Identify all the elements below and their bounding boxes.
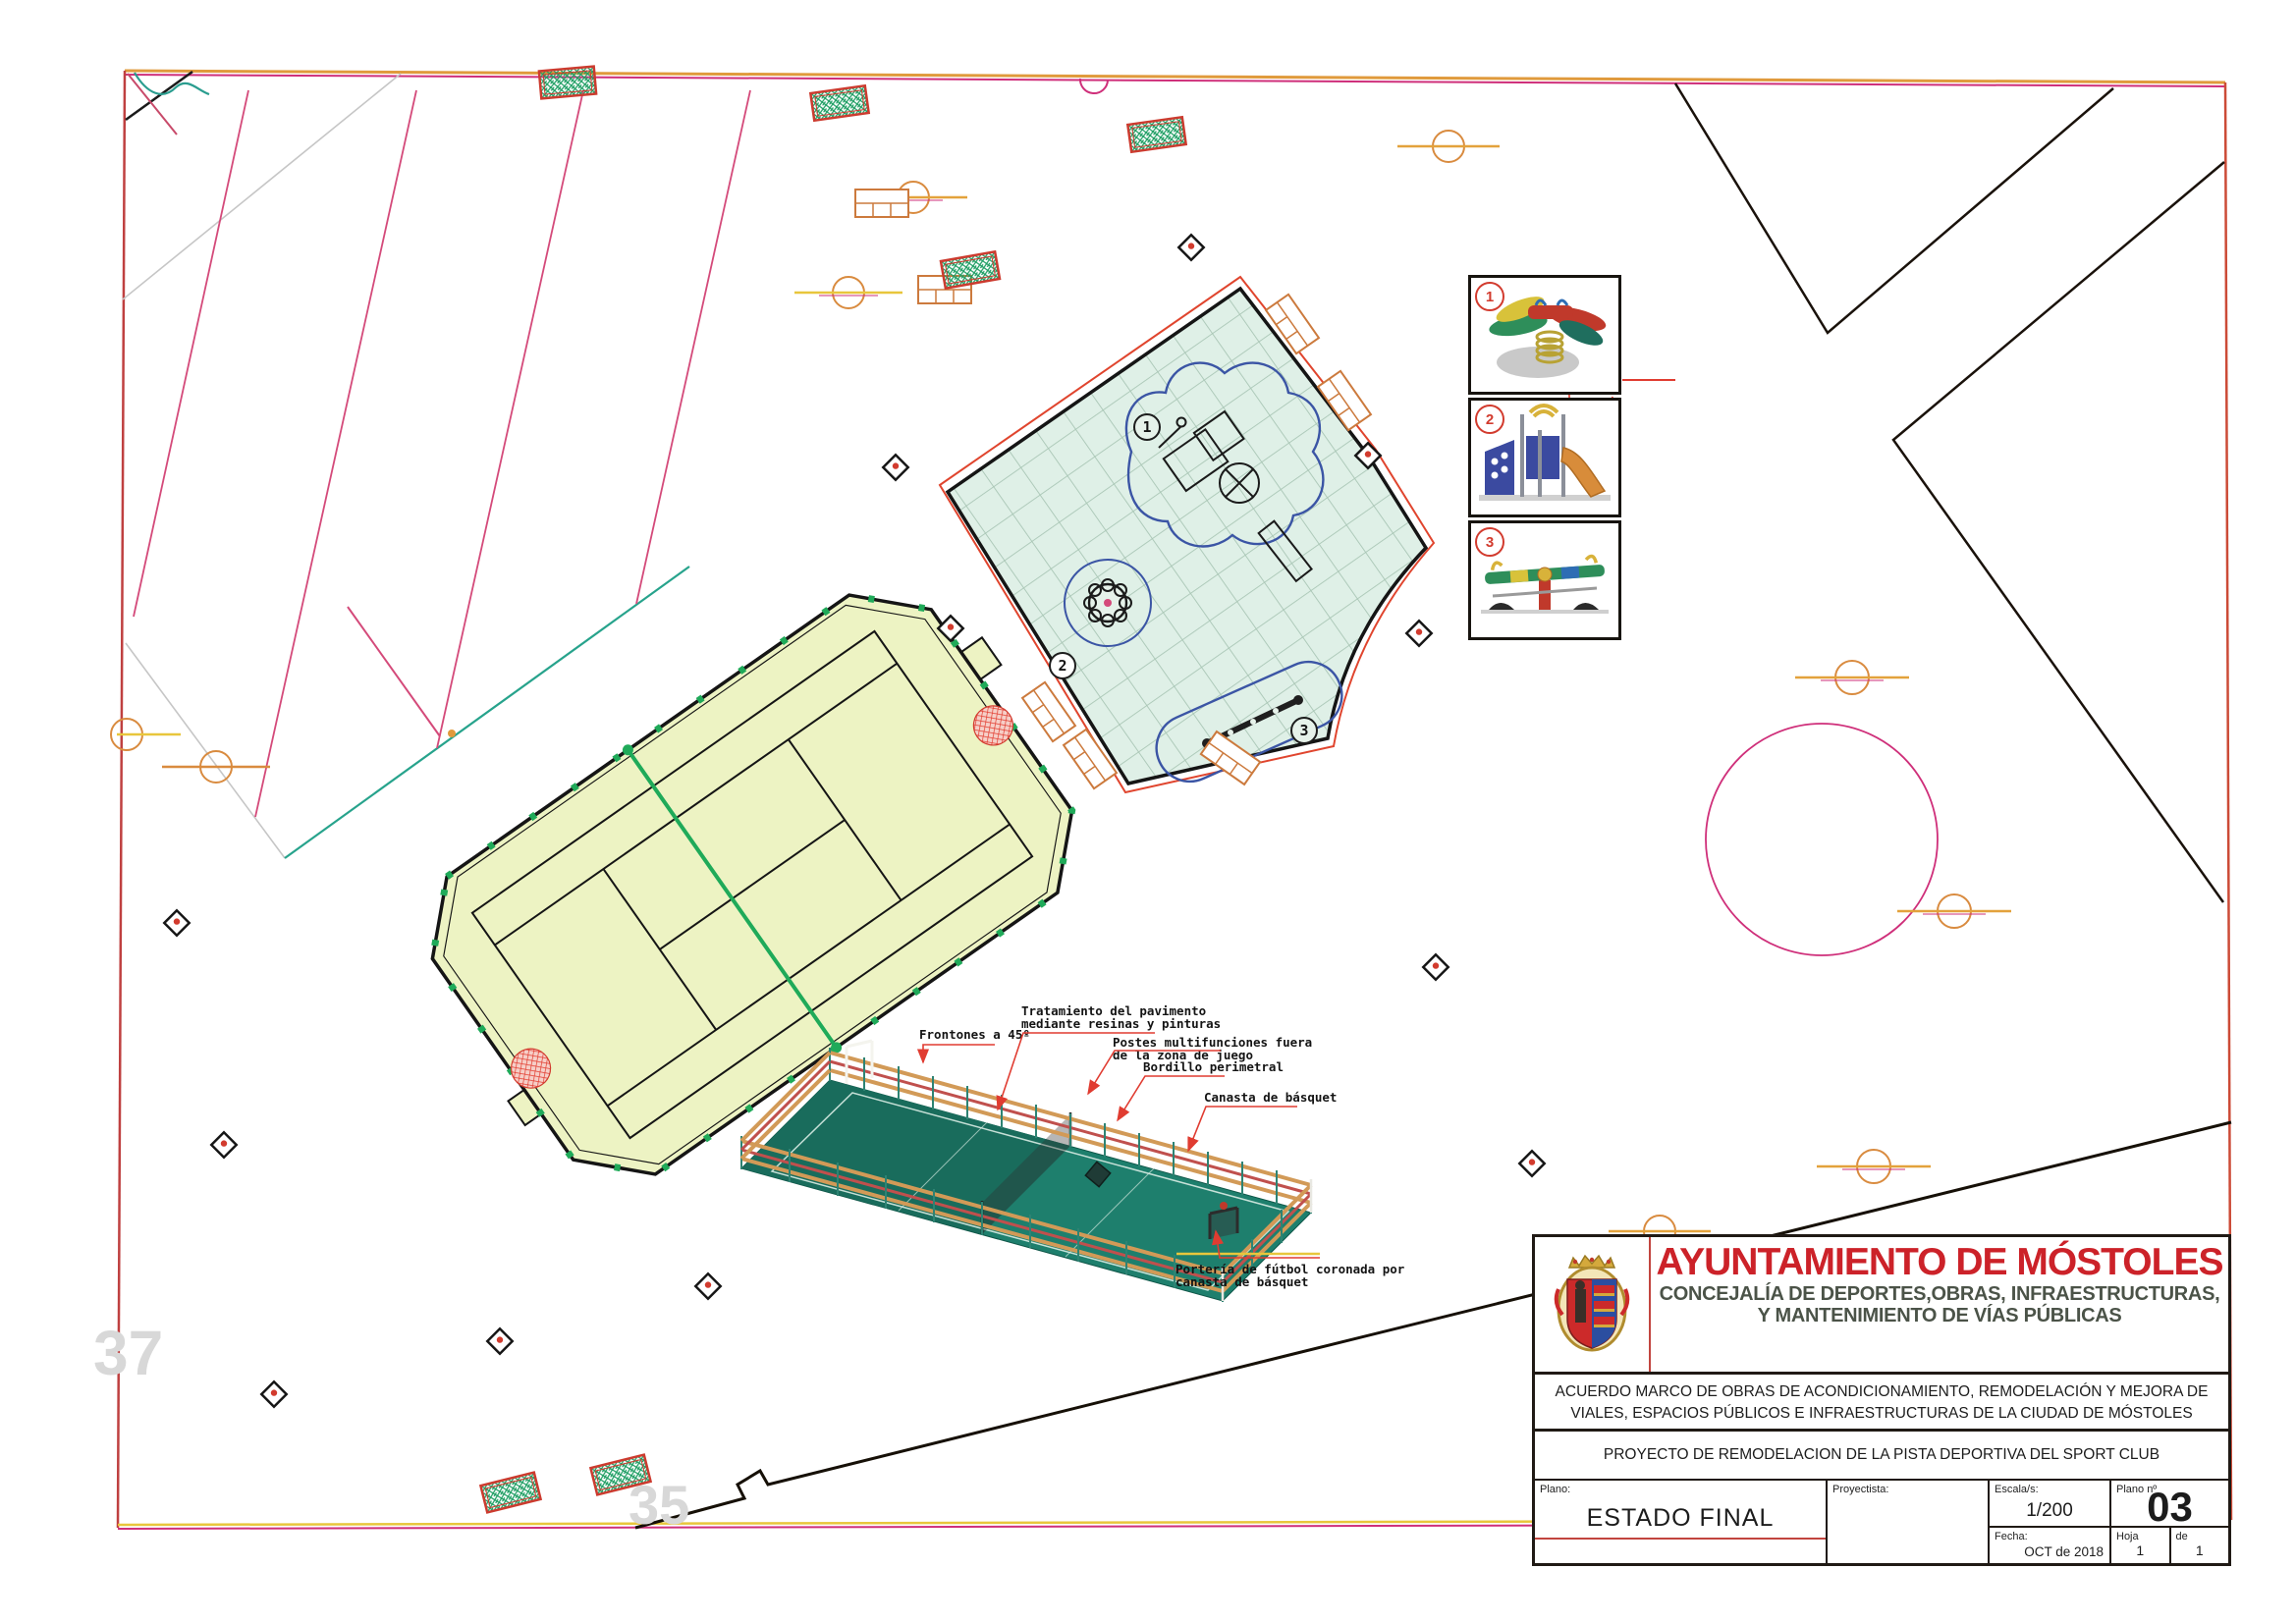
svg-text:1: 1 [1142, 418, 1151, 436]
proyectista-cell: Proyectista: [1828, 1481, 1990, 1563]
svg-text:canasta de básquet: canasta de básquet [1175, 1274, 1308, 1289]
hoja-value: 1 [2136, 1542, 2144, 1558]
equipment-marker-2: 2 [1050, 653, 1075, 678]
equipment-photo-1: 1 [1468, 275, 1621, 395]
circle-feature [1706, 724, 1938, 955]
photo-number-badge: 1 [1475, 282, 1504, 311]
plano-label: Plano: [1540, 1484, 1570, 1495]
mostoles-crest-icon [1552, 1250, 1632, 1360]
equipment-photo-2: 2 [1468, 398, 1621, 517]
fecha-value: OCT de 2018 [2024, 1544, 2104, 1559]
svg-text:2: 2 [1058, 657, 1066, 675]
de-subcell: de 1 [2171, 1528, 2229, 1563]
escala-cell: Escala/s: 1/200 [1990, 1481, 2109, 1528]
coat-of-arms [1535, 1237, 1651, 1372]
callout-canasta: Canasta de básquet [1188, 1090, 1337, 1151]
de-label: de [2176, 1531, 2188, 1542]
de-value: 1 [2196, 1542, 2204, 1558]
planonum-hoja-cell: Plano nº 03 Hoja 1 de 1 [2111, 1481, 2228, 1563]
title-block-fields: Plano: ESTADO FINAL Proyectista: Escala/… [1535, 1481, 2228, 1563]
organization-title: AYUNTAMIENTO DE MÓSTOLES [1651, 1243, 2228, 1283]
tree-icons [111, 131, 2011, 1247]
department-line2: Y MANTENIMIENTO DE VÍAS PÚBLICAS [1651, 1305, 2228, 1326]
plano-cell: Plano: ESTADO FINAL [1535, 1481, 1828, 1563]
petanque-stripes [134, 90, 750, 817]
photo-number-badge: 2 [1475, 405, 1504, 434]
proyectista-label: Proyectista: [1832, 1484, 1888, 1495]
plano-empty-strip [1535, 1538, 1826, 1563]
department-line1: CONCEJALÍA DE DEPORTES,OBRAS, INFRAESTRU… [1651, 1283, 2228, 1305]
title-block: AYUNTAMIENTO DE MÓSTOLES CONCEJALÍA DE D… [1532, 1234, 2231, 1566]
agreement-line1: ACUERDO MARCO DE OBRAS DE ACONDICIONAMIE… [1535, 1381, 2228, 1403]
boundary-wedge-2 [1893, 162, 2224, 902]
plano-num-label: Plano nº [2116, 1484, 2157, 1495]
callout-frontones: Frontones a 45º [919, 1027, 1030, 1062]
svg-text:Canasta de básquet: Canasta de básquet [1204, 1090, 1337, 1105]
hoja-cell: Hoja 1 de 1 [2111, 1528, 2228, 1563]
svg-text:mediante resinas y pinturas: mediante resinas y pinturas [1021, 1016, 1221, 1031]
svg-text:Bordillo perimetral: Bordillo perimetral [1143, 1059, 1284, 1074]
playground-area: 1 2 3 [940, 277, 1434, 792]
svg-text:Frontones a 45º: Frontones a 45º [919, 1027, 1030, 1042]
agreement-line2: VIALES, ESPACIOS PÚBLICOS E INFRAESTRUCT… [1535, 1403, 2228, 1425]
plano-num-cell: Plano nº 03 [2111, 1481, 2228, 1528]
fecha-cell: Fecha: OCT de 2018 [1990, 1528, 2109, 1563]
hoja-label: Hoja [2116, 1531, 2139, 1542]
project-title: PROYECTO DE REMODELACION DE LA PISTA DEP… [1535, 1432, 2228, 1481]
parcel-number-37: 37 [93, 1318, 163, 1388]
photo-number-badge: 3 [1475, 527, 1504, 557]
hoja-subcell: Hoja 1 [2111, 1528, 2171, 1563]
svg-text:3: 3 [1299, 722, 1308, 739]
equipment-marker-1: 1 [1134, 414, 1160, 440]
title-block-header: AYUNTAMIENTO DE MÓSTOLES CONCEJALÍA DE D… [1535, 1237, 2228, 1375]
escala-value: 1/200 [1990, 1500, 2109, 1522]
corner-survey-marks [126, 72, 209, 135]
fecha-label: Fecha: [1995, 1531, 2028, 1542]
boundary-wedge-1 [1675, 83, 2113, 333]
escala-fecha-cell: Escala/s: 1/200 Fecha: OCT de 2018 [1990, 1481, 2111, 1563]
framework-agreement: ACUERDO MARCO DE OBRAS DE ACONDICIONAMIE… [1535, 1375, 2228, 1432]
equipment-marker-3: 3 [1291, 718, 1317, 743]
plano-value: ESTADO FINAL [1535, 1504, 1826, 1533]
escala-label: Escala/s: [1995, 1484, 2039, 1495]
equipment-photo-3: 3 [1468, 520, 1621, 640]
plan-sheet: 37 35 [0, 0, 2296, 1623]
